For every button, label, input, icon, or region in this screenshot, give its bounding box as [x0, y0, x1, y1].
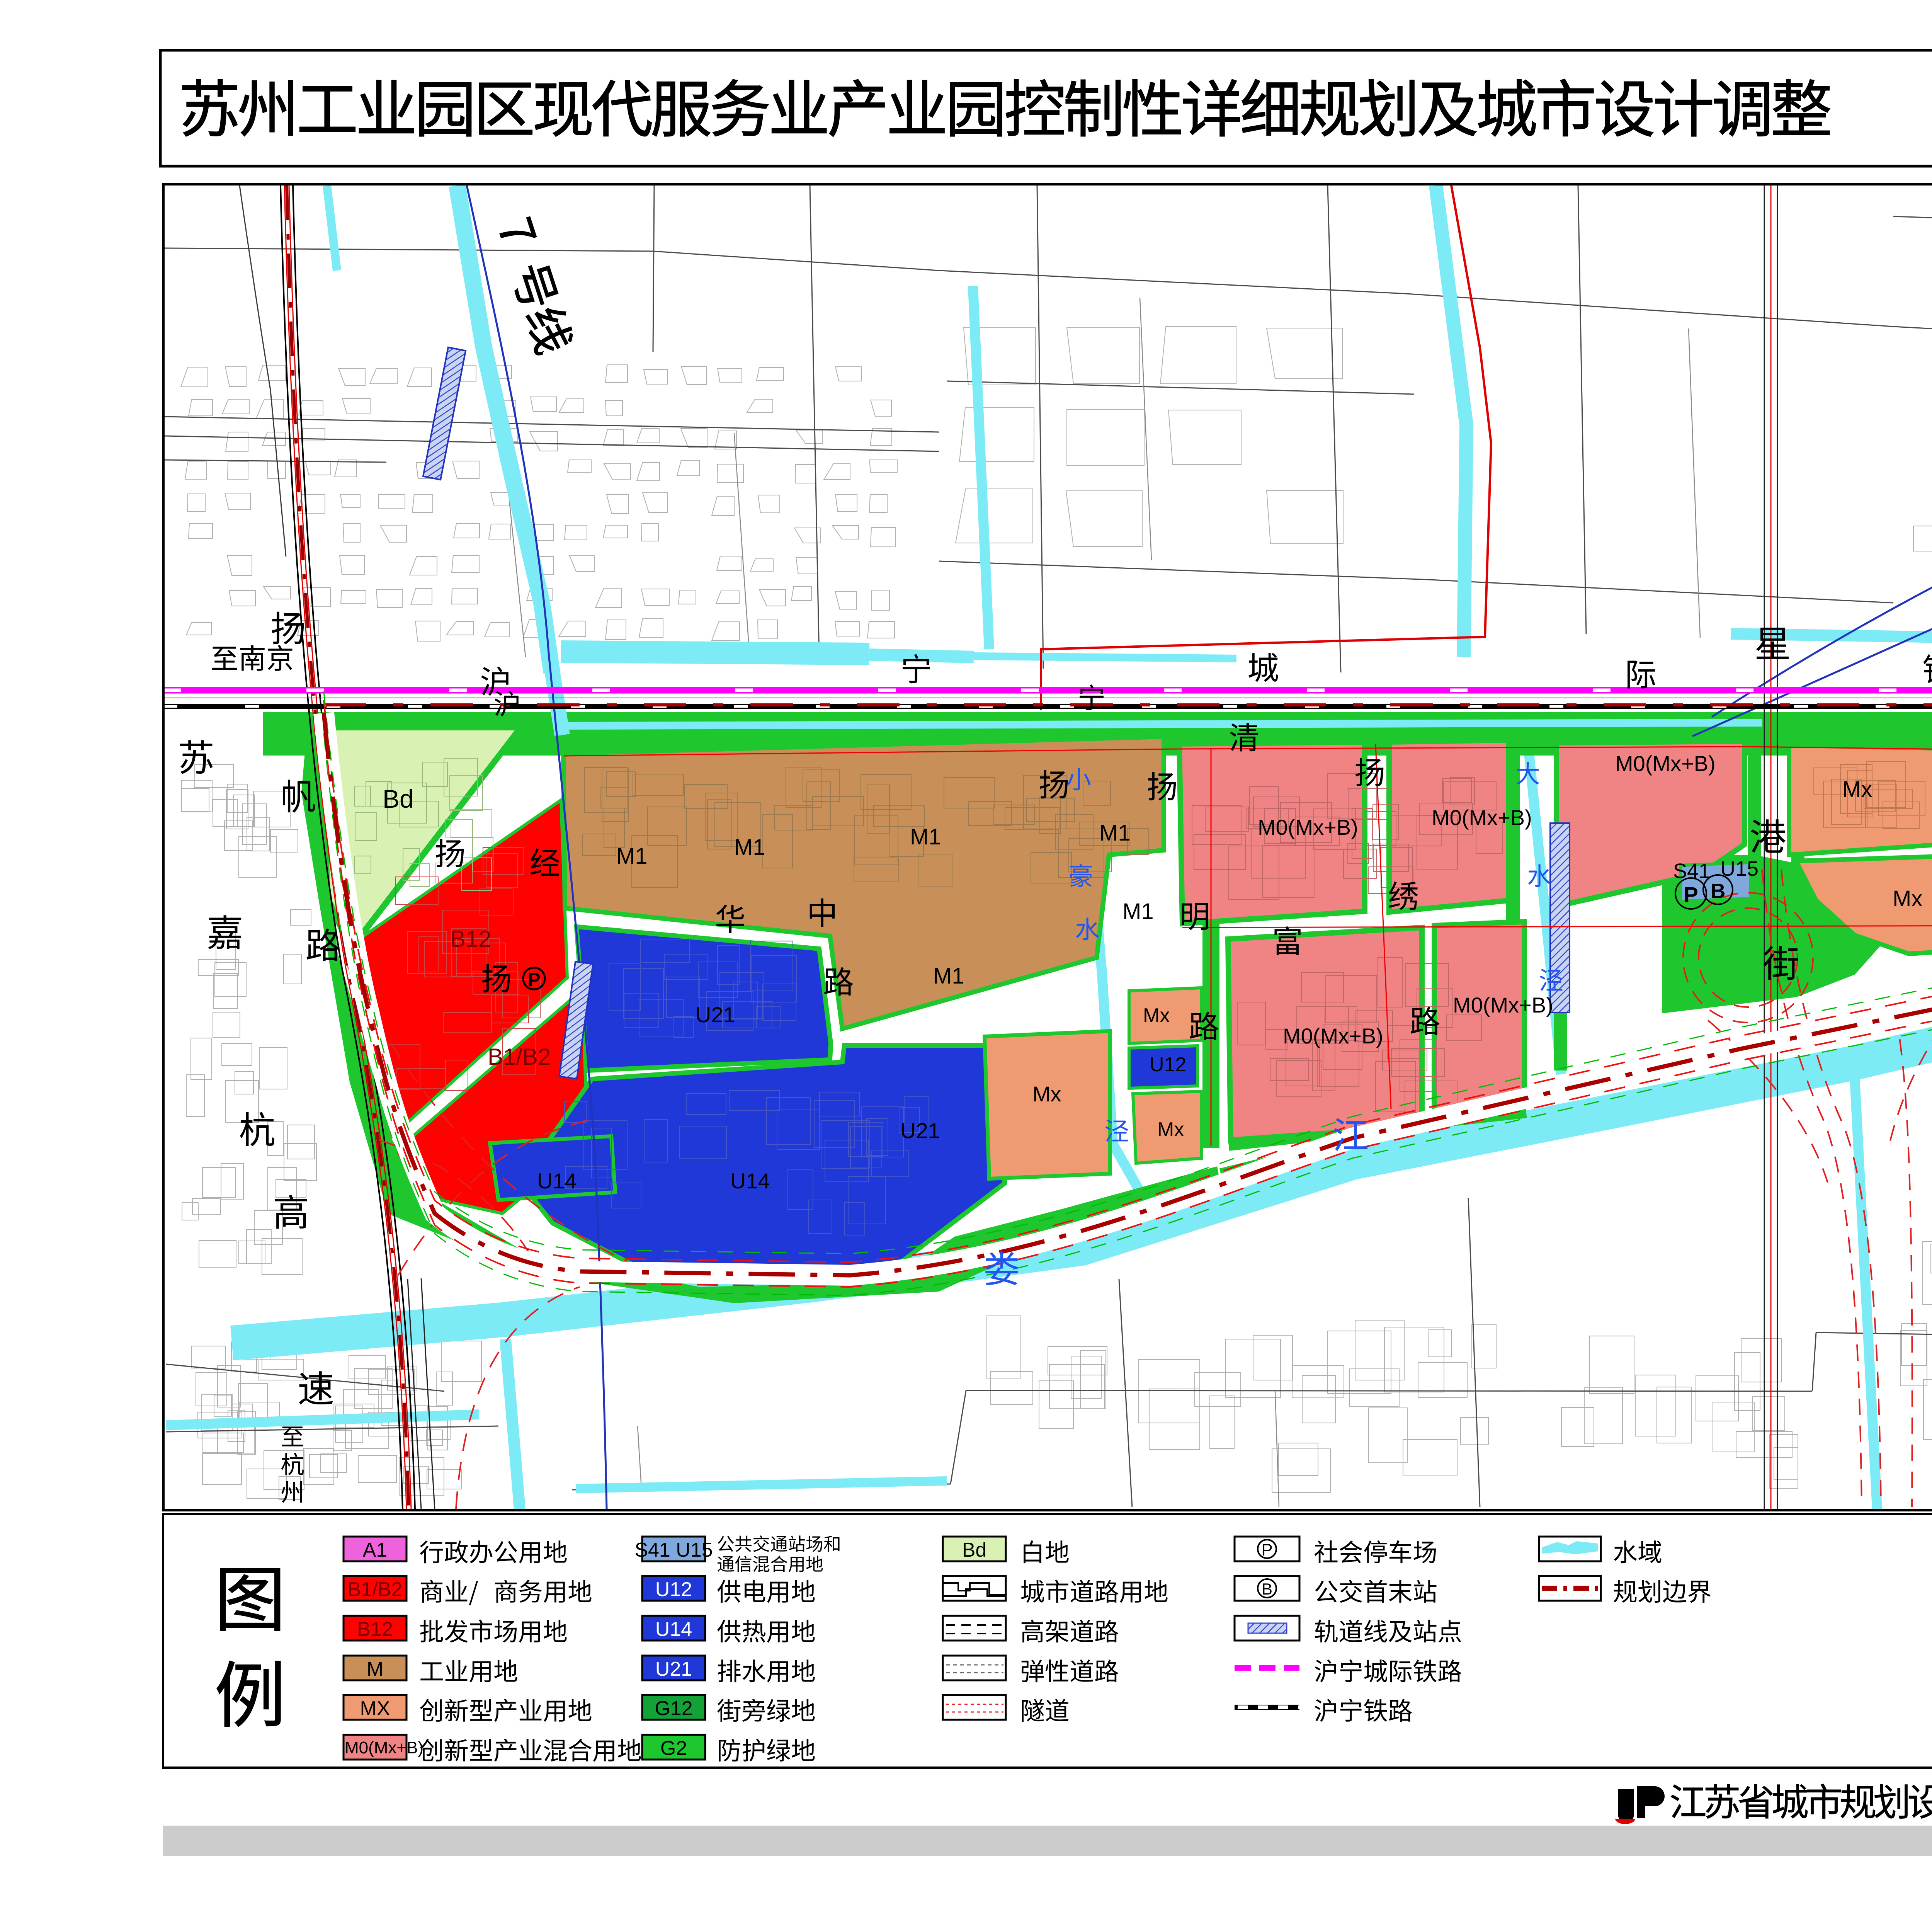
svg-text:M0(Mx+B): M0(Mx+B): [1453, 993, 1553, 1017]
svg-text:U14: U14: [730, 1169, 770, 1193]
svg-text:B: B: [1262, 1580, 1272, 1598]
svg-text:B1/B2: B1/B2: [488, 1044, 551, 1070]
svg-text:M0(Mx+B): M0(Mx+B): [345, 1738, 423, 1757]
svg-text:U21: U21: [900, 1118, 940, 1143]
svg-text:Bd: Bd: [383, 785, 414, 813]
svg-text:M1: M1: [616, 844, 648, 869]
svg-text:B: B: [1711, 880, 1726, 903]
svg-text:M1: M1: [933, 963, 964, 989]
svg-text:M1: M1: [734, 835, 765, 860]
svg-text:G12: G12: [655, 1697, 692, 1720]
svg-text:M0(Mx+B): M0(Mx+B): [1258, 815, 1358, 839]
svg-text:M: M: [367, 1658, 383, 1680]
svg-text:M1: M1: [910, 824, 941, 849]
svg-text:B12: B12: [450, 926, 492, 952]
svg-text:M0(Mx+B): M0(Mx+B): [1432, 805, 1532, 830]
svg-text:M1: M1: [1122, 899, 1154, 924]
svg-text:Mx: Mx: [1893, 886, 1922, 911]
svg-text:P: P: [1261, 1540, 1272, 1559]
svg-text:Bd: Bd: [962, 1539, 987, 1561]
svg-text:M0(Mx+B): M0(Mx+B): [1283, 1024, 1383, 1048]
svg-text:U21: U21: [655, 1658, 692, 1680]
svg-text:B1/B2: B1/B2: [348, 1578, 403, 1601]
svg-text:U12: U12: [1150, 1053, 1186, 1076]
svg-text:Mx: Mx: [1143, 1004, 1170, 1027]
svg-text:S41: S41: [1673, 859, 1710, 883]
svg-text:P: P: [527, 969, 540, 990]
svg-text:Mx: Mx: [1157, 1118, 1184, 1141]
svg-text:S41 U15: S41 U15: [634, 1539, 713, 1561]
svg-text:Mx: Mx: [1842, 777, 1872, 802]
svg-text:MX: MX: [360, 1697, 390, 1720]
svg-text:G2: G2: [660, 1737, 687, 1760]
svg-text:M0(Mx+B): M0(Mx+B): [1615, 751, 1716, 776]
svg-text:M1: M1: [1099, 820, 1131, 846]
svg-text:A1: A1: [363, 1539, 388, 1561]
svg-text:Mx: Mx: [1032, 1082, 1061, 1106]
svg-text:U21: U21: [696, 1002, 735, 1027]
svg-text:B12: B12: [357, 1618, 393, 1641]
svg-text:U12: U12: [655, 1578, 692, 1601]
svg-text:U14: U14: [537, 1169, 577, 1193]
svg-text:P: P: [1684, 882, 1698, 907]
svg-text:U14: U14: [655, 1618, 692, 1641]
